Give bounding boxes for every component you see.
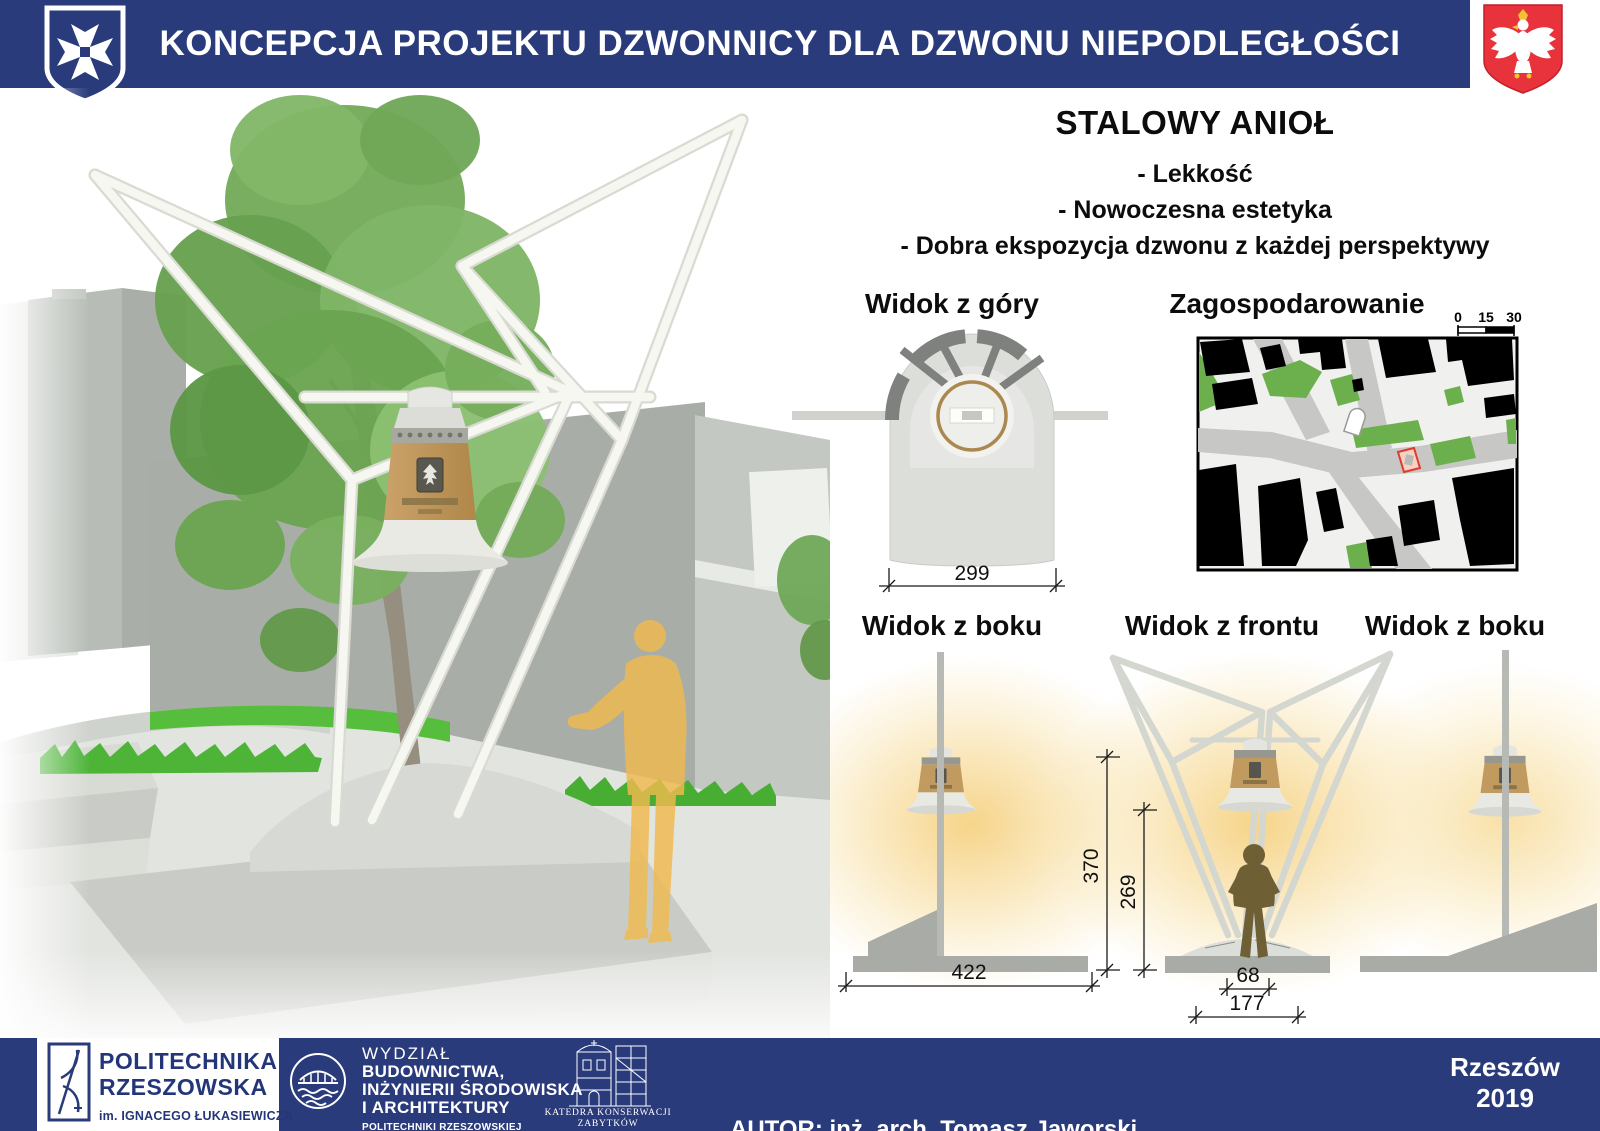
city: Rzeszów	[1425, 1052, 1585, 1083]
politechnika-logo-icon	[47, 1042, 91, 1122]
front-view-drawing	[1113, 654, 1390, 973]
elevation-drawings: 422 370 269 68 177	[830, 630, 1600, 1035]
scale-30: 30	[1506, 309, 1522, 325]
bell-inscription	[402, 498, 458, 505]
page-title: KONCEPCJA PROJEKTU DZWONNICY DLA DZWONU …	[150, 0, 1410, 88]
base-slab	[1360, 956, 1597, 972]
render-3d-view	[0, 88, 830, 1040]
pole	[937, 652, 944, 968]
pole	[1502, 650, 1509, 968]
label-top-view: Widok z góry	[865, 288, 1039, 320]
author-line: AUTOR: inż. arch. Tomasz Jaworski	[730, 1114, 1314, 1131]
concept-feature: - Dobra ekspozycja dzwonu z każdej persp…	[830, 228, 1560, 264]
university-line2: RZESZOWSKA	[99, 1074, 293, 1100]
university-name: POLITECHNIKA RZESZOWSKA im. IGNACEGO ŁUK…	[99, 1048, 293, 1129]
scale-15: 15	[1478, 309, 1494, 325]
place-and-year: Rzeszów 2019	[1425, 1052, 1585, 1114]
dim-299: 299	[954, 562, 989, 585]
site-plan: 0 15 30	[1195, 297, 1525, 575]
year: 2019	[1425, 1083, 1585, 1114]
edge-fade	[0, 88, 90, 1040]
dim-177: 177	[1229, 992, 1264, 1015]
concept-block: STALOWY ANIOŁ - Lekkość - Nowoczesna est…	[830, 104, 1560, 264]
scale-0: 0	[1454, 309, 1462, 325]
side-view-left-drawing	[853, 652, 1088, 972]
concept-feature: - Lekkość	[830, 156, 1560, 192]
university-line3: im. IGNACEGO ŁUKASIEWICZA	[99, 1103, 293, 1129]
department-line2: ZABYTKÓW	[538, 1119, 678, 1130]
dim-370: 370	[1080, 848, 1103, 883]
department-line1: KATEDRA KONSERWACJI	[538, 1108, 678, 1119]
top-view-drawing: 299	[790, 320, 1110, 610]
scale-bar: 0 15 30	[1454, 309, 1522, 336]
dim-422: 422	[951, 961, 986, 984]
dim-68: 68	[1236, 964, 1259, 987]
dim-269: 269	[1117, 874, 1140, 909]
department-name: KATEDRA KONSERWACJI ZABYTKÓW	[538, 1108, 678, 1130]
department-logo-icon	[565, 1038, 655, 1110]
faculty-line2: BUDOWNICTWA,	[362, 1063, 583, 1081]
faculty-line1: WYDZIAŁ	[362, 1045, 583, 1063]
faculty-logo-icon	[288, 1051, 348, 1111]
faculty-line3: INŻYNIERII ŚRODOWISKA	[362, 1081, 583, 1099]
side-view-right-drawing	[1360, 650, 1597, 972]
concept-feature: - Nowoczesna estetyka	[830, 192, 1560, 228]
university-line1: POLITECHNIKA	[99, 1048, 293, 1074]
concept-title: STALOWY ANIOŁ	[830, 104, 1560, 142]
poster: KONCEPCJA PROJEKTU DZWONNICY DLA DZWONU …	[0, 0, 1600, 1131]
credits: AUTOR: inż. arch. Tomasz Jaworski PROMOT…	[730, 1052, 1314, 1131]
poland-eagle-icon	[1480, 3, 1566, 95]
